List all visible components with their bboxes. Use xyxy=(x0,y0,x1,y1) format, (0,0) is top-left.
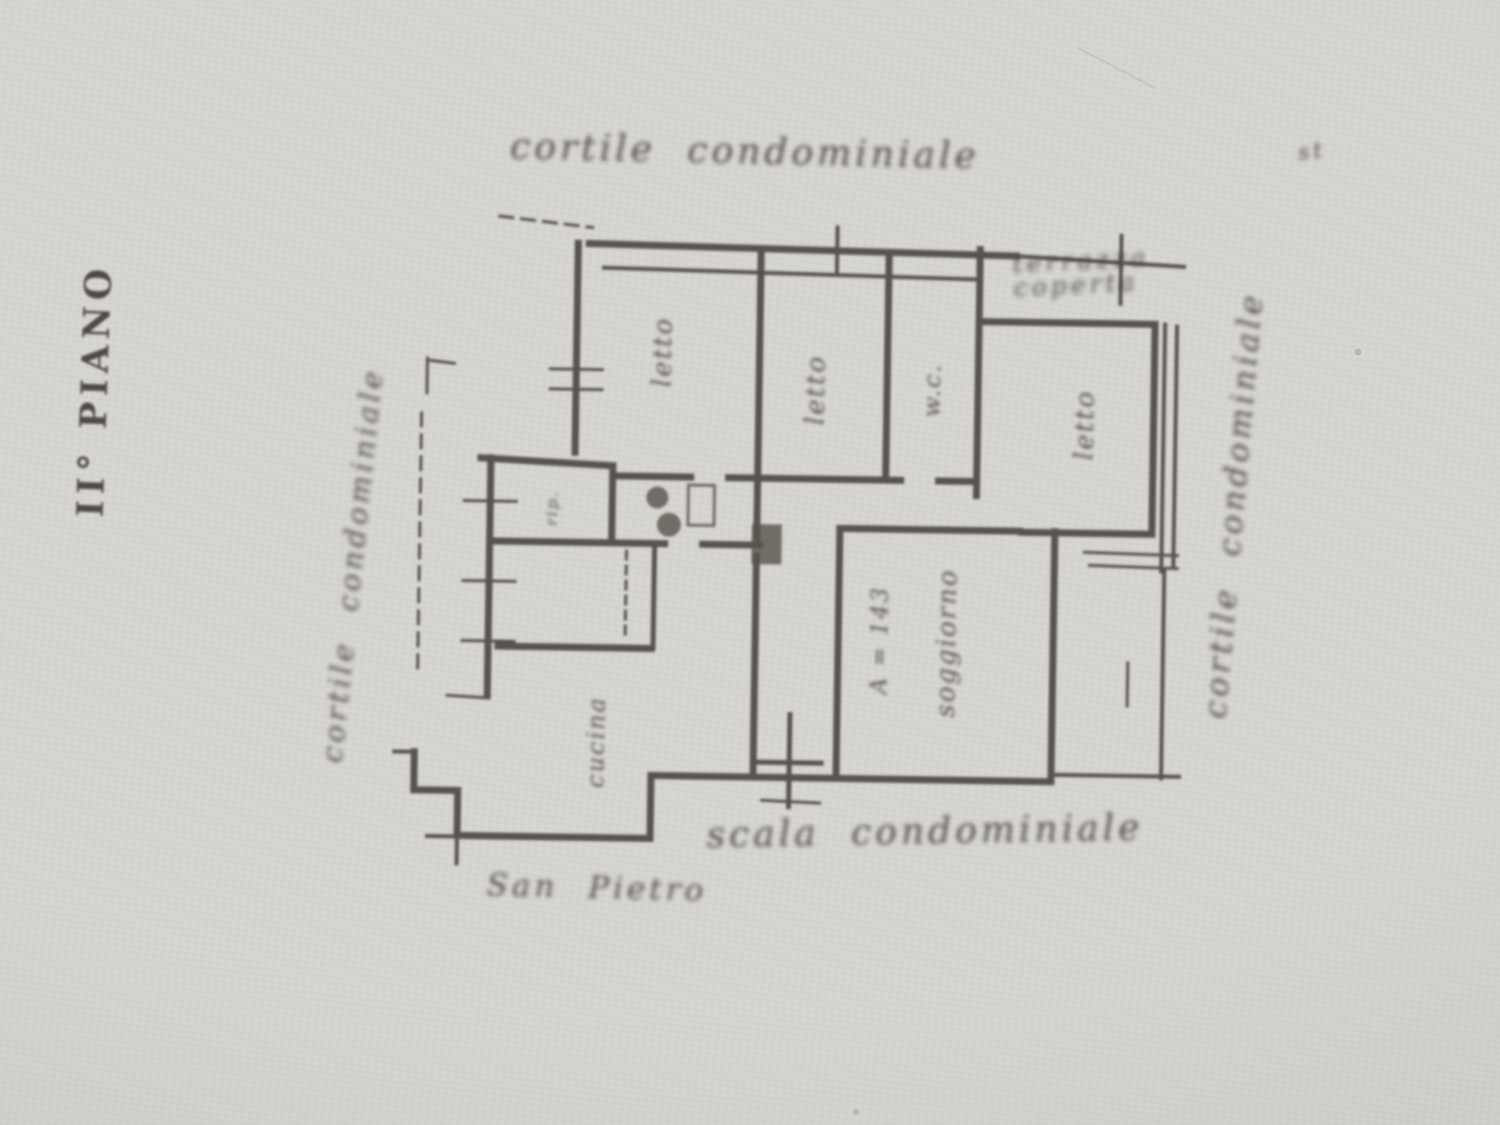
walls xyxy=(413,241,1156,846)
balcony-lines xyxy=(1008,256,1187,779)
entrance-door-mark xyxy=(759,714,822,807)
floor-plan xyxy=(0,0,1500,1125)
terrace-dashed-line xyxy=(418,215,632,674)
dark-door-blob xyxy=(751,524,782,564)
bath-fixtures xyxy=(645,484,782,564)
window-marks xyxy=(462,368,602,643)
scanned-floor-plan-page: II° PIANO cortile condominiale cortile c… xyxy=(0,0,1500,1125)
photo-artifacts xyxy=(854,48,1362,1115)
